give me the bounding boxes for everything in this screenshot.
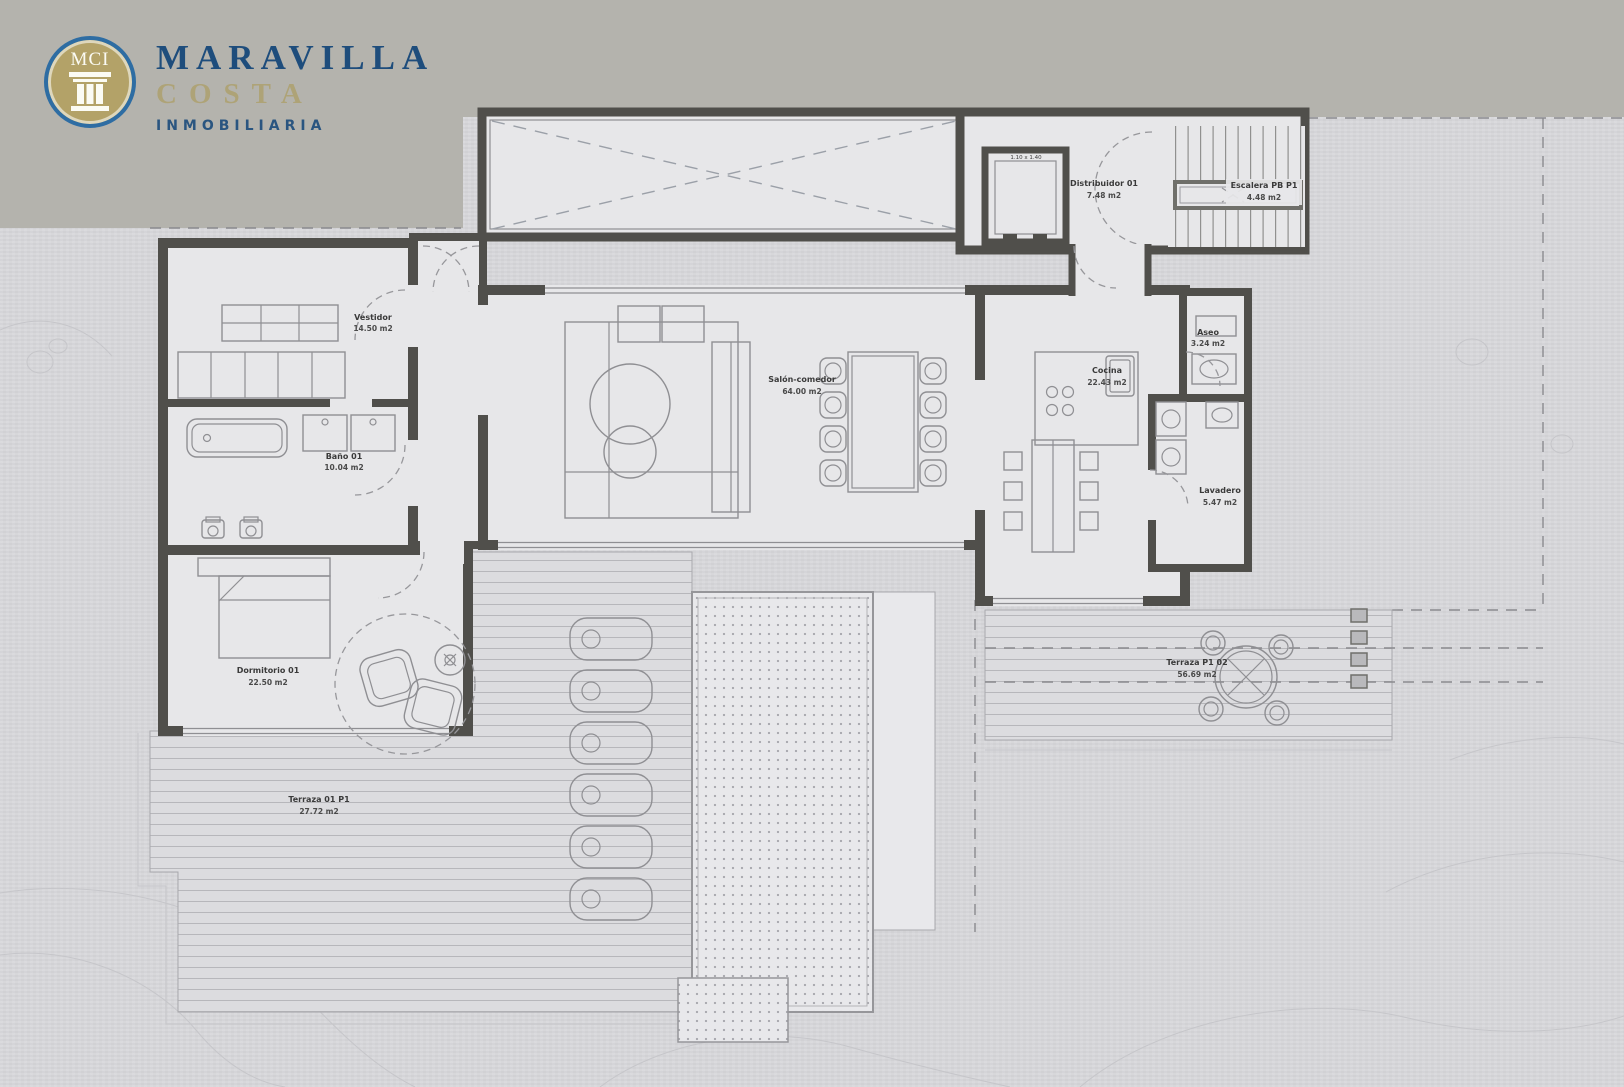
- brand-title: MARAVILLA: [156, 40, 434, 77]
- pool-step-pad: [678, 978, 788, 1042]
- svg-text:56.69 m2: 56.69 m2: [1177, 670, 1216, 679]
- room-label-escalera: Escalera PB P1 4.48 m2: [1226, 179, 1302, 205]
- room-vestidor-floor: [163, 243, 413, 550]
- svg-text:Baño 01: Baño 01: [326, 452, 363, 461]
- floor-plan: 1.10 x 1.40: [0, 0, 1624, 1087]
- svg-text:Lavadero: Lavadero: [1199, 486, 1241, 495]
- svg-text:7.48 m2: 7.48 m2: [1087, 191, 1121, 200]
- pool: [678, 592, 873, 1042]
- room-lavadero-floor: [1152, 398, 1248, 568]
- svg-text:4.48 m2: 4.48 m2: [1247, 193, 1281, 202]
- svg-text:Terraza 01 P1: Terraza 01 P1: [288, 795, 350, 804]
- svg-text:22.43 m2: 22.43 m2: [1087, 378, 1126, 387]
- column-icon: [67, 72, 113, 114]
- logo-badge: MCI: [44, 36, 136, 128]
- corridor-floor: [413, 237, 483, 545]
- svg-text:5.47 m2: 5.47 m2: [1203, 498, 1237, 507]
- brand-logo: MCI MARAVILLA COSTA INMOBILIARIA: [44, 36, 434, 134]
- svg-text:14.50 m2: 14.50 m2: [353, 324, 392, 333]
- svg-text:Terraza P1 02: Terraza P1 02: [1166, 658, 1227, 667]
- pool-side-strip: [873, 592, 935, 930]
- svg-text:Distribuidor 01: Distribuidor 01: [1070, 179, 1138, 188]
- svg-text:Vestidor: Vestidor: [354, 313, 392, 322]
- brand-subtitle: COSTA: [156, 79, 434, 111]
- scanned-floor-plan-page: 1.10 x 1.40: [0, 0, 1624, 1087]
- elevator-dimension-label: 1.10 x 1.40: [1010, 155, 1042, 161]
- svg-text:27.72 m2: 27.72 m2: [299, 807, 338, 816]
- room-void-floor: [482, 112, 965, 237]
- svg-text:64.00 m2: 64.00 m2: [782, 387, 821, 396]
- elevator-icon: 1.10 x 1.40: [985, 150, 1066, 243]
- svg-text:Dormitorio 01: Dormitorio 01: [237, 666, 300, 675]
- svg-text:22.50 m2: 22.50 m2: [248, 678, 287, 687]
- brand-tagline: INMOBILIARIA: [156, 118, 434, 134]
- logo-monogram: MCI: [71, 50, 110, 69]
- svg-text:3.24 m2: 3.24 m2: [1191, 339, 1225, 348]
- room-dormitorio-floor: [163, 550, 468, 731]
- svg-text:Cocina: Cocina: [1092, 366, 1122, 375]
- brand-text: MARAVILLA COSTA INMOBILIARIA: [156, 36, 434, 134]
- svg-text:Escalera PB P1: Escalera PB P1: [1231, 181, 1298, 190]
- svg-text:Salón-comedor: Salón-comedor: [768, 374, 836, 384]
- svg-text:Aseo: Aseo: [1197, 328, 1219, 337]
- svg-text:10.04 m2: 10.04 m2: [324, 463, 363, 472]
